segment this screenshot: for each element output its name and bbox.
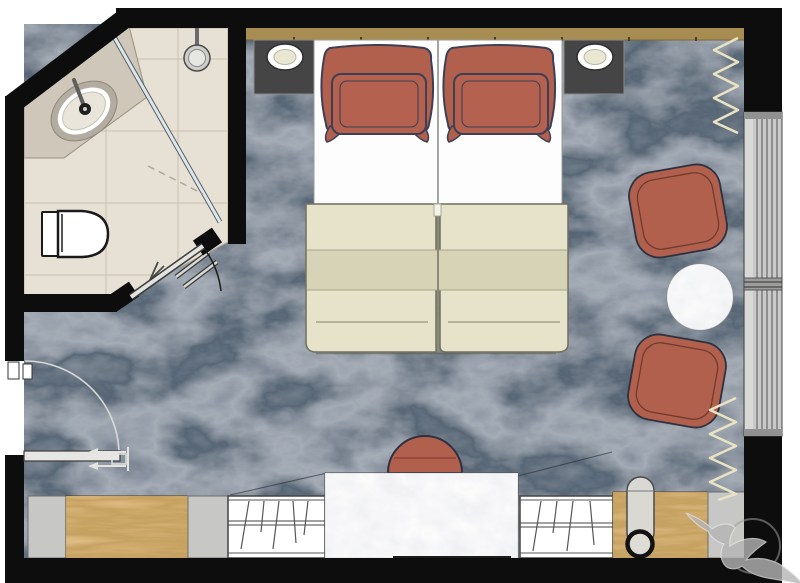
twin-beds: [306, 40, 568, 354]
pillow-front: [332, 74, 426, 134]
wall-left-upper: [5, 312, 24, 361]
window: [744, 112, 782, 436]
wall-top: [116, 8, 782, 28]
table-lamp-left: [267, 44, 303, 70]
headboard: [246, 28, 744, 41]
round-side-table: [667, 264, 733, 330]
grey-panel: [188, 496, 228, 558]
wardrobe-right: [520, 496, 613, 558]
duvet: [306, 204, 568, 354]
pillows: [321, 45, 433, 142]
wall-bathroom-right: [228, 18, 246, 244]
wall-left-lower: [5, 455, 24, 558]
pillows: [443, 45, 555, 142]
duvet-notch: [434, 204, 441, 216]
door-frame-mark: [8, 362, 19, 379]
wall-bottom: [5, 558, 782, 583]
wardrobe-left: [228, 496, 325, 558]
floor-plan-canvas: [0, 0, 800, 583]
wood-cabinet-left: [66, 496, 188, 562]
window-transom: [744, 278, 782, 290]
grey-panel: [28, 496, 66, 558]
nightstand-right: [564, 40, 624, 94]
wall-right-upper: [744, 8, 782, 112]
lounge-chair-lower: [624, 331, 730, 432]
lounge-chair-upper: [625, 161, 731, 262]
table-lamp-right: [577, 44, 613, 70]
floor-plan: [0, 0, 800, 583]
door-frame-mark: [23, 364, 32, 379]
wall-bathroom-left: [5, 96, 24, 312]
floor-lamp: [627, 477, 654, 557]
wall-bathroom-bottom: [5, 294, 117, 312]
toilet: [42, 211, 108, 257]
nightstand-left: [254, 40, 314, 94]
